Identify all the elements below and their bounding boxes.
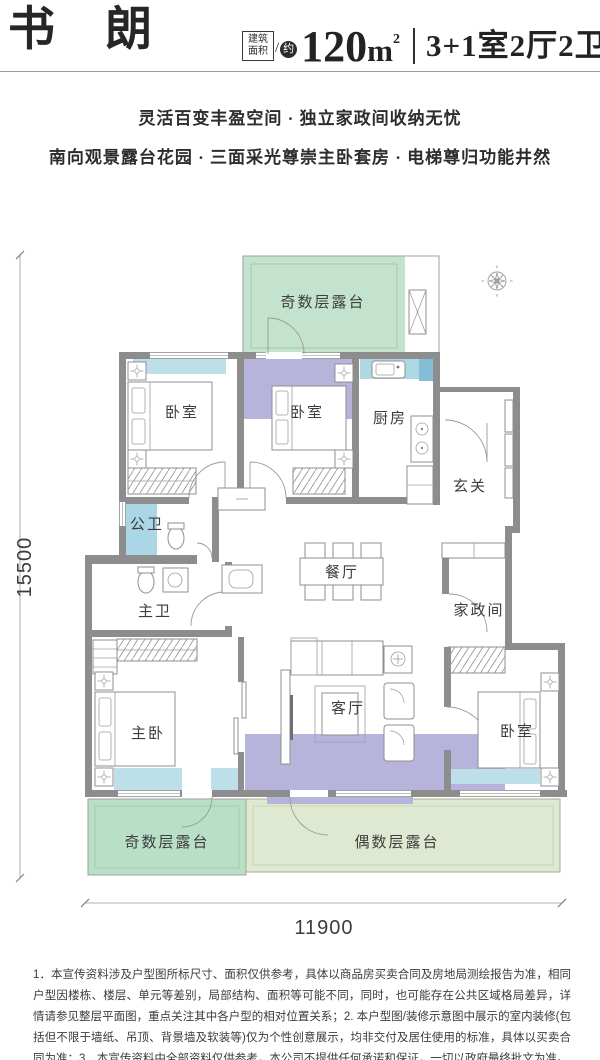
area-unit-sup: 2 [393, 32, 400, 47]
label-living: 客厅 [331, 700, 365, 717]
area-spec-group: 建筑 面积 / 约 120m2 3+1室2厅2卫 [242, 18, 600, 73]
label-kitchen: 厨房 [373, 410, 407, 427]
label-bedroom-right: 卧室 [500, 723, 534, 740]
compass-icon [482, 266, 513, 297]
label-bath-master: 主卫 [138, 603, 172, 620]
dimension-width: 11900 [294, 917, 353, 939]
header-divider [413, 28, 415, 64]
label-bedroom-left: 卧室 [165, 404, 199, 421]
area-value: 120m2 [301, 18, 400, 73]
label-master-bedroom: 主卧 [131, 725, 165, 742]
label-terrace-even: 偶数层露台 [354, 834, 439, 851]
label-bath-public: 公卫 [130, 517, 164, 533]
area-unit: m [367, 33, 393, 68]
subtitle-line-1: 灵活百变丰盈空间 · 独立家政间收纳无忧 [0, 104, 600, 129]
floorplan-drawing: 奇数层露台 卧室 卧室 厨房 玄关 公卫 餐厅 主卫 家政间 主卧 客厅 卧室 … [0, 240, 600, 960]
label-entry: 玄关 [453, 478, 487, 495]
label-dining: 餐厅 [325, 564, 359, 581]
area-number: 120 [301, 22, 367, 71]
layout-spec: 3+1室2厅2卫 [426, 24, 600, 68]
dimension-height: 15500 [14, 537, 36, 598]
area-slash: / [275, 40, 279, 57]
label-bedroom-mid: 卧室 [290, 404, 324, 421]
label-terrace-top: 奇数层露台 [280, 294, 365, 311]
subtitle-line-2: 南向观景露台花园 · 三面采光尊崇主卧套房 · 电梯尊归功能井然 [0, 143, 600, 168]
header-rule [0, 71, 600, 72]
marketing-subtitles: 灵活百变丰盈空间 · 独立家政间收纳无忧 南向观景露台花园 · 三面采光尊崇主卧… [0, 104, 600, 182]
disclaimer-text: 1．本宣传资料涉及户型图所标尺寸、面积仅供参考，具体以商品房买卖合同及房地局测绘… [33, 965, 571, 1060]
built-area-badge: 建筑 面积 [242, 31, 274, 61]
page-title: 书朗 [8, 0, 202, 60]
built-area-label-line1: 建筑 [248, 34, 268, 46]
floorplan-poster: 书朗 建筑 面积 / 约 120m2 3+1室2厅2卫 灵活百变丰盈空间 · 独… [0, 0, 600, 1060]
label-utility: 家政间 [453, 602, 504, 619]
label-terrace-odd: 奇数层露台 [124, 834, 209, 851]
elevator-shaft-icon [409, 290, 426, 334]
approx-badge: 约 [280, 41, 297, 58]
built-area-label-line2: 面积 [248, 46, 268, 58]
